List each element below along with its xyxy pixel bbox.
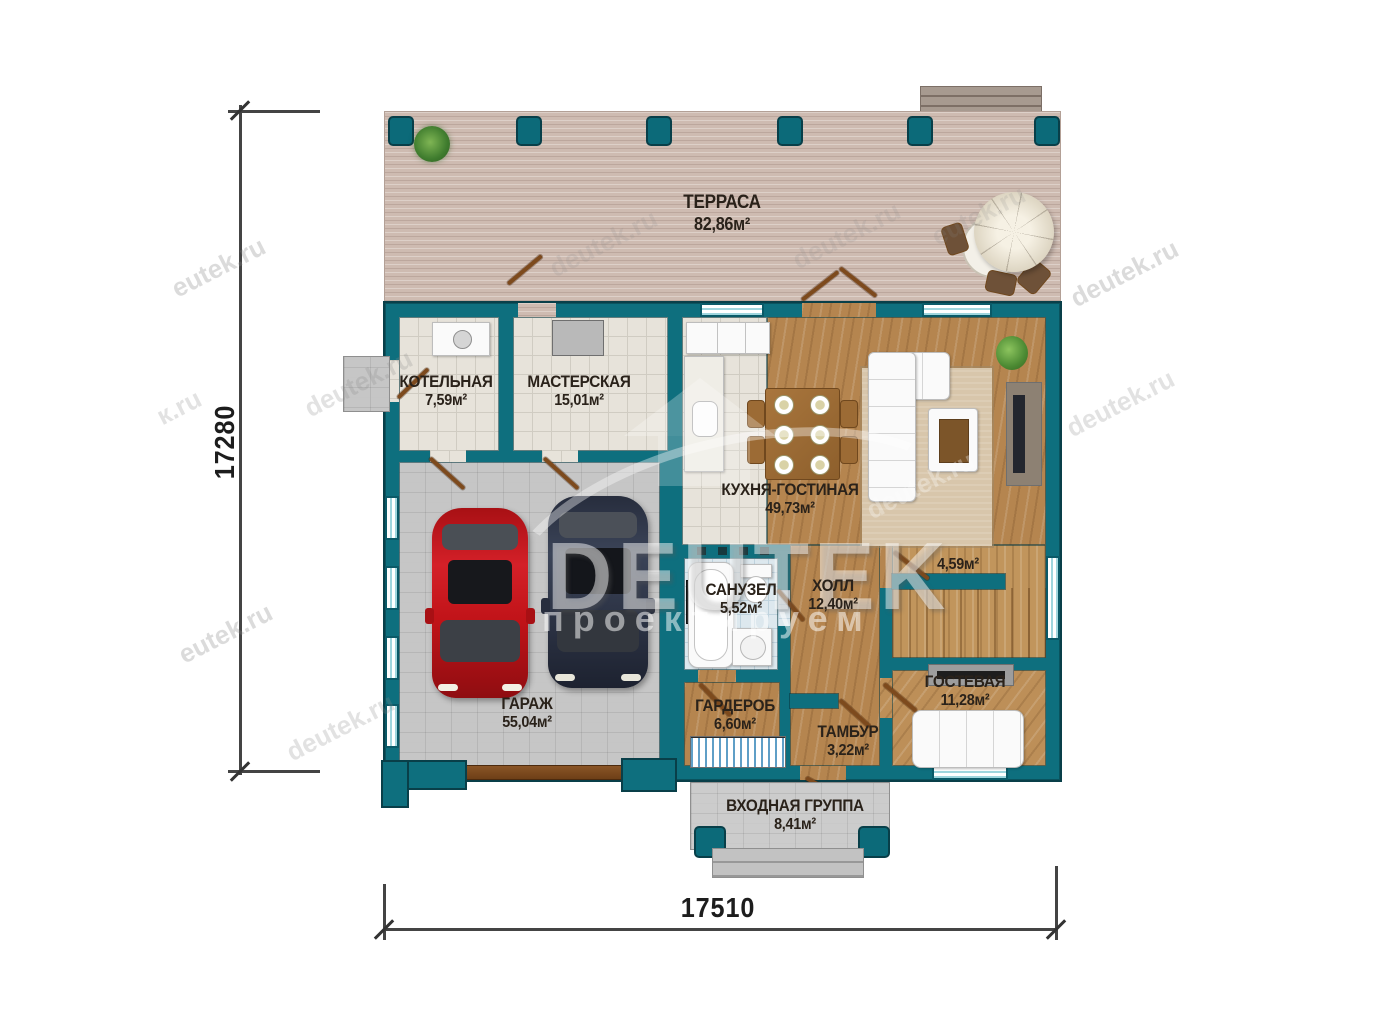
dimension-line-horizontal — [384, 928, 1058, 931]
label-hall: ХОЛЛ 12,40м² — [805, 576, 860, 615]
terrace-plant — [414, 126, 450, 162]
car-headlight — [438, 684, 458, 691]
door-gap-terrace-single — [518, 303, 556, 317]
window-garage-1 — [385, 496, 399, 540]
terrace-post — [777, 116, 803, 146]
room-name: КУХНЯ-ГОСТИНАЯ — [721, 480, 858, 500]
boiler-unit — [432, 322, 490, 356]
watermark-site: deutek.ru — [1061, 363, 1179, 444]
room-area: 49,73м² — [721, 500, 858, 519]
room-name: ВХОДНАЯ ГРУППА — [726, 796, 864, 816]
watermark-site: к.ru — [151, 383, 206, 432]
terrace-post — [907, 116, 933, 146]
label-garage: ГАРАЖ 55,04м² — [499, 694, 556, 733]
terrace-post — [1034, 116, 1060, 146]
window-kitchen — [700, 303, 764, 317]
watermark-house-body — [658, 436, 750, 486]
room-area: 55,04м² — [501, 714, 552, 733]
room-area: 5,52м² — [706, 600, 777, 619]
wardrobe-rail — [690, 736, 786, 768]
window-guest — [932, 766, 1008, 780]
room-name: ГОСТЕВАЯ — [925, 672, 1006, 692]
label-terrace: ТЕРРАСА 82,86м² — [679, 192, 765, 236]
label-wardrobe: ГАРДЕРОБ 6,60м² — [691, 696, 780, 735]
watermark-site: deutek.ru — [1065, 233, 1183, 314]
window-living — [922, 303, 992, 317]
wall-pilaster — [383, 762, 407, 806]
door-gap-terrace-double — [802, 303, 876, 317]
room-area: 15,01м² — [527, 392, 630, 411]
label-guest: ГОСТЕВАЯ 11,28м² — [920, 672, 1010, 711]
label-tambour: ТАМБУР 3,22м² — [814, 722, 882, 761]
watermark-site: eutek.ru — [173, 597, 277, 671]
dining-chair — [840, 400, 858, 428]
room-area: 3,22м² — [818, 742, 879, 761]
room-name: КОТЕЛЬНАЯ — [399, 372, 492, 392]
tv-console — [1006, 382, 1042, 486]
room-area: 4,59м² — [937, 556, 979, 575]
watermark-site: eutek.ru — [166, 231, 270, 305]
room-name: ХОЛЛ — [808, 576, 858, 596]
dimension-left-value: 17280 — [209, 388, 241, 496]
room-name: ГАРДЕРОБ — [695, 696, 775, 716]
window-garage-3 — [385, 636, 399, 680]
room-area: 12,40м² — [808, 596, 858, 615]
room-area: 8,41м² — [726, 816, 864, 835]
living-plant — [996, 336, 1028, 370]
porch-steps — [712, 848, 864, 878]
room-name: МАСТЕРСКАЯ — [527, 372, 630, 392]
terrace-post — [646, 116, 672, 146]
room-name: ТАМБУР — [818, 722, 879, 742]
watermark-site: deutek.ru — [281, 687, 399, 768]
workshop-bench — [552, 320, 604, 356]
room-name: ГАРАЖ — [501, 694, 552, 714]
floor-plan-canvas: 17280 17510 — [0, 0, 1400, 1015]
room-area: 7,59м² — [399, 392, 492, 411]
room-area: 82,86м² — [683, 214, 760, 235]
watermark-house-roof — [624, 378, 776, 436]
label-kitchen-living: КУХНЯ-ГОСТИНАЯ 49,73м² — [714, 480, 867, 519]
car-rear-window — [442, 524, 518, 550]
room-area: 6,60м² — [695, 716, 775, 735]
window-garage-2 — [385, 566, 399, 610]
boiler-drum — [453, 330, 472, 349]
label-entrance: ВХОДНАЯ ГРУППА 8,41м² — [719, 796, 872, 835]
car-headlight — [502, 684, 522, 691]
dimension-bottom-value: 17510 — [610, 892, 826, 924]
label-bathroom: САНУЗЕЛ 5,52м² — [702, 580, 781, 619]
room-name: ТЕРРАСА — [683, 192, 760, 214]
car-mirror — [425, 608, 434, 624]
tambour-wall-stub — [790, 694, 838, 708]
room-area: 11,28м² — [925, 692, 1006, 711]
label-workshop: МАСТЕРСКАЯ 15,01м² — [522, 372, 637, 411]
terrace-post — [516, 116, 542, 146]
kitchen-counter-top — [686, 322, 770, 354]
window-stairs — [1046, 556, 1060, 640]
wall-pilaster — [623, 760, 675, 790]
room-name: САНУЗЕЛ — [706, 580, 777, 600]
label-boiler: КОТЕЛЬНАЯ 7,59м² — [394, 372, 498, 411]
place-setting — [774, 395, 794, 415]
garage-door — [453, 766, 623, 779]
label-stairs: 4,59м² — [935, 556, 982, 575]
tv-screen — [1013, 395, 1025, 473]
place-setting — [810, 395, 830, 415]
guest-sofa — [912, 710, 1024, 768]
terrace-post — [388, 116, 414, 146]
